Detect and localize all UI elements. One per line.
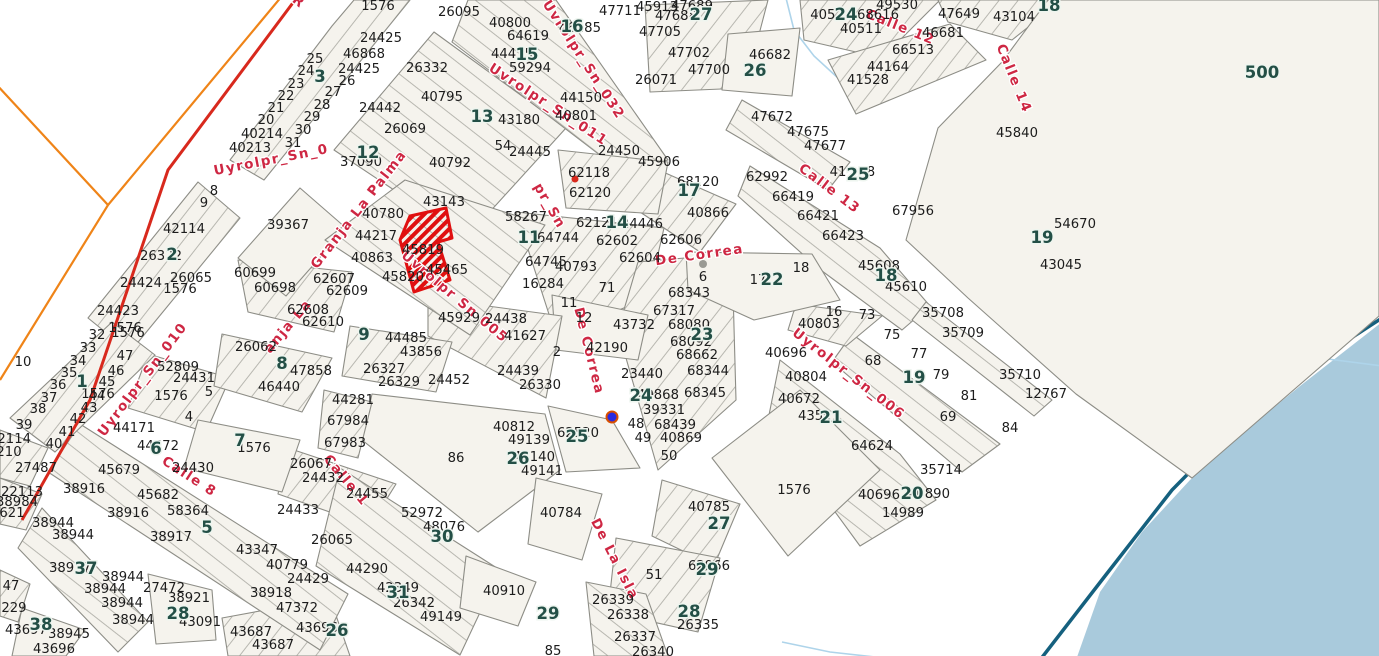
parcel-number-label: 47858 <box>290 364 332 379</box>
parcel-number-label: 68345 <box>684 386 726 401</box>
parcel-number-label: 26332 <box>406 61 448 76</box>
block-number-label: 17 <box>678 181 701 200</box>
parcel-number-label: 85 <box>545 644 562 656</box>
parcel-number-label: 47649 <box>938 7 980 22</box>
parcel-number-label: 46440 <box>258 380 300 395</box>
parcel-number-label: 47372 <box>276 601 318 616</box>
parcel-number-label: 86 <box>448 451 465 466</box>
parcel-number-label: 24438 <box>485 312 527 327</box>
parcel-number-label: 51 <box>646 568 663 583</box>
parcel-number-label: 64624 <box>851 439 893 454</box>
block-number-label: 31 <box>387 583 410 602</box>
parcel-number-label: 54670 <box>1054 217 1096 232</box>
parcel-number-label: 47702 <box>668 46 710 61</box>
parcel-number-label: 38917 <box>150 530 192 545</box>
block-number-label: 28 <box>167 604 190 623</box>
parcel-number-label: 6 <box>699 270 707 285</box>
parcel-number-label: 47672 <box>751 110 793 125</box>
block-number-label: 11 <box>518 228 541 247</box>
parcel-number-label: 67956 <box>892 204 934 219</box>
parcel-number-label: 39367 <box>267 218 309 233</box>
parcel-number-label: 26337 <box>614 630 656 645</box>
parcel-number-label: 44290 <box>346 562 388 577</box>
parcel-number-label: 45679 <box>98 463 140 478</box>
parcel-number-label: 62604 <box>619 251 661 266</box>
parcel-number-label: 11 <box>561 296 578 311</box>
parcel-number-label: 1576 <box>111 326 145 341</box>
parcel-number-label: 40866 <box>687 206 729 221</box>
parcel-number-label: 40696 <box>765 346 807 361</box>
parcel-number-label: 24442 <box>359 101 401 116</box>
parcel-number-label: 44171 <box>113 421 155 436</box>
parcel-number-label: 26095 <box>438 5 480 20</box>
parcel-number-label: 40792 <box>429 156 471 171</box>
parcel-number-label: 38944 <box>84 582 126 597</box>
parcel-number-label: 8 <box>210 184 218 199</box>
parcel-number-label: 40795 <box>421 90 463 105</box>
parcel-number-label: 5 <box>205 385 213 400</box>
parcel-number-label: 41 <box>830 165 847 180</box>
block-number-label: 20 <box>901 484 924 503</box>
map-canvas[interactable]: Uyrolpr_Sn_0Uvrolpr_Sn_011Uvrolpr_Sn_032… <box>0 0 1379 656</box>
parcel-number-label: 26330 <box>519 378 561 393</box>
parcel-number-label: 42114 <box>163 222 205 237</box>
parcel-number-label: 229 <box>1 601 26 616</box>
block-number-label: 3 <box>314 67 325 86</box>
parcel-number-label: 64744 <box>537 231 579 246</box>
parcel-number-label: 26338 <box>607 608 649 623</box>
block-number-label: 19 <box>903 368 926 387</box>
parcel-number-label: 40779 <box>266 558 308 573</box>
parcel-number-label: 43045 <box>1040 258 1082 273</box>
parcel-number-label: 49139 <box>508 433 550 448</box>
block-number-label: 14 <box>606 213 629 232</box>
block-number-label: 23 <box>691 325 714 344</box>
parcel-number-label: 24455 <box>346 487 388 502</box>
parcel-number-label: 46868 <box>343 47 385 62</box>
parcel-number-label: 43687 <box>252 638 294 653</box>
parcel-number-label: 62118 <box>568 166 610 181</box>
parcel-number-label: 23440 <box>621 367 663 382</box>
parcel-number-label: 43856 <box>400 345 442 360</box>
parcel-number-label: 26069 <box>384 122 426 137</box>
parcel-number-label: 40869 <box>660 431 702 446</box>
parcel-number-label: 46 <box>108 364 125 379</box>
parcel-number-label: 4 <box>185 410 193 425</box>
parcel-number-label: 40801 <box>555 109 597 124</box>
parcel-number-label: 1576 <box>154 389 188 404</box>
parcel-number-label: 44281 <box>332 393 374 408</box>
parcel-number-label: 40804 <box>785 370 827 385</box>
parcel-number-label: 62120 <box>569 186 611 201</box>
parcel-number-label: 210 <box>0 445 22 460</box>
parcel-number-label: 66513 <box>892 43 934 58</box>
parcel-number-label: 9 <box>200 196 208 211</box>
parcel-number-label: 14989 <box>882 506 924 521</box>
parcel-number-label: 71 <box>599 281 616 296</box>
street-name-label: R <box>289 0 308 12</box>
map-viewport[interactable]: Uyrolpr_Sn_0Uvrolpr_Sn_011Uvrolpr_Sn_032… <box>0 0 1379 656</box>
parcel-number-label: 64619 <box>507 29 549 44</box>
parcel-number-label: 24425 <box>360 31 402 46</box>
parcel-number-label: 41528 <box>847 73 889 88</box>
block-number-label: 2 <box>166 245 177 264</box>
parcel-number-label: 44217 <box>355 229 397 244</box>
blue-point-marker[interactable] <box>607 412 618 423</box>
block-number-label: 19 <box>1031 228 1054 247</box>
block-number-label: 1 <box>76 372 87 391</box>
parcel-number-label: 43180 <box>498 113 540 128</box>
block-number-label: 38 <box>30 615 53 634</box>
parcel-number-label: 35714 <box>920 463 962 478</box>
parcel-number-label: 47705 <box>639 25 681 40</box>
parcel-number-label: 43732 <box>613 318 655 333</box>
parcel-number-label: 52972 <box>401 506 443 521</box>
parcel-number-label: 24431 <box>173 371 215 386</box>
parcel-number-label: 1576 <box>777 483 811 498</box>
parcel-number-label: 69 <box>940 410 957 425</box>
block-number-label: 29 <box>696 560 719 579</box>
block-number-label: 21 <box>820 408 843 427</box>
parcel-number-label: 66423 <box>822 229 864 244</box>
parcel-number-label: 44150 <box>560 91 602 106</box>
parcel-number-label: 24432 <box>302 471 344 486</box>
block-number-label: 22 <box>761 270 784 289</box>
parcel-number-label: 20 <box>258 113 275 128</box>
block-number-label: 7 <box>234 431 245 450</box>
parcel-number-label: 62602 <box>596 234 638 249</box>
parcel-number-label: 40785 <box>688 500 730 515</box>
parcel-number-label: 48 <box>628 417 645 432</box>
parcel-number-label: 26071 <box>635 73 677 88</box>
parcel-number-label: 39331 <box>643 403 685 418</box>
parcel-number-label: 27487 <box>15 461 57 476</box>
parcel-number-label: 40910 <box>483 584 525 599</box>
parcel-number-label: 24424 <box>120 276 162 291</box>
parcel-number-label: 62606 <box>660 233 702 248</box>
block-number-label: 26 <box>744 61 767 80</box>
parcel-number-label: 24423 <box>97 304 139 319</box>
parcel-number-label: 66419 <box>772 190 814 205</box>
block-number-label: 27 <box>690 5 713 24</box>
parcel-number-label: 2 <box>553 345 561 360</box>
parcel-number-label: 47675 <box>787 125 829 140</box>
parcel-number-label: 84 <box>1002 421 1019 436</box>
parcel-number-label: 68 <box>865 354 882 369</box>
parcel-number-label: 621 <box>0 506 25 521</box>
block-number-label: 24 <box>630 386 653 405</box>
parcel-number-label: 26329 <box>378 375 420 390</box>
parcel-number-label: 35710 <box>999 368 1041 383</box>
parcel-number-label: 45906 <box>638 155 680 170</box>
parcel-number-label: 43143 <box>423 195 465 210</box>
parcel-number-label: 43347 <box>236 543 278 558</box>
orange-boundary-road <box>0 84 108 205</box>
parcel-number-label: 43696 <box>33 642 75 656</box>
block-number-label: 25 <box>847 165 870 184</box>
parcel-number-label: 26340 <box>632 645 674 656</box>
parcel-number-label: 47677 <box>804 139 846 154</box>
parcel-number-label: 38918 <box>250 586 292 601</box>
parcel-number-label: 26065 <box>311 533 353 548</box>
parcel-number-label: 24452 <box>428 373 470 388</box>
parcel-number-label: 45840 <box>996 126 1038 141</box>
parcel-number-label: 24429 <box>287 572 329 587</box>
parcel-number-label: 49149 <box>420 610 462 625</box>
parcel-number-label: 67983 <box>324 436 366 451</box>
parcel-number-label: 39 <box>16 418 33 433</box>
parcel-number-label: 38916 <box>107 506 149 521</box>
parcel-number-label: 66421 <box>797 209 839 224</box>
block-number-label: 27 <box>708 514 731 533</box>
parcel-number-label: 67984 <box>327 414 369 429</box>
parcel-number-label: 40511 <box>840 22 882 37</box>
block-number-label: 28 <box>678 602 701 621</box>
parcel-number-label: 40213 <box>229 141 271 156</box>
parcel-number-label: 40696 <box>858 488 900 503</box>
block-number-label: 500 <box>1245 63 1279 82</box>
parcel-number-label: 49 <box>635 431 652 446</box>
parcel-number-label: 40863 <box>351 251 393 266</box>
block-number-label: 18 <box>1038 0 1061 15</box>
block-number-label: 9 <box>358 325 369 344</box>
parcel-number-label: 38945 <box>48 627 90 642</box>
parcel-number-label: 45465 <box>426 263 468 278</box>
parcel-number-label: 60699 <box>234 266 276 281</box>
parcel-number-label: 45820 <box>382 270 424 285</box>
parcel-number-label: 58364 <box>167 504 209 519</box>
block-number-label: 29 <box>537 604 560 623</box>
parcel-number-label: 41 <box>59 425 76 440</box>
parcel-number-label: 40672 <box>778 392 820 407</box>
parcel-number-label: 50 <box>661 449 678 464</box>
block-number-label: 5 <box>201 518 212 537</box>
parcel-number-label: 43104 <box>993 10 1035 25</box>
block-number-label: 24 <box>835 5 858 24</box>
parcel-number-label: 35708 <box>922 306 964 321</box>
block-number-label: 26 <box>507 449 530 468</box>
parcel-number-label: 46681 <box>922 26 964 41</box>
parcel-number-label: 35709 <box>942 326 984 341</box>
parcel-number-label: 31 <box>285 136 302 151</box>
parcel-number-label: 38944 <box>112 613 154 628</box>
block-number-label: 25 <box>566 427 589 446</box>
block-number-label: 15 <box>516 45 539 64</box>
parcel-number-label: 45929 <box>438 311 480 326</box>
stream-line <box>782 642 884 656</box>
parcel-number-label: 62610 <box>302 315 344 330</box>
parcel-number-label: 40214 <box>241 127 283 142</box>
parcel-number-label: 16284 <box>522 277 564 292</box>
block-number-label: 16 <box>561 17 584 36</box>
parcel-number-label: 45682 <box>137 488 179 503</box>
block-number-label: 37 <box>75 559 98 578</box>
parcel-number-label: 26067 <box>290 457 332 472</box>
parcel-number-label: 38 <box>30 402 47 417</box>
parcel-number-label: 24450 <box>598 144 640 159</box>
parcel-number-label: 77 <box>911 347 928 362</box>
parcel-number-label: 68662 <box>676 348 718 363</box>
parcel-number-label: 40784 <box>540 506 582 521</box>
parcel-number-label: 44485 <box>385 331 427 346</box>
parcel-number-label: 24439 <box>497 364 539 379</box>
parcel-number-label: 40793 <box>555 260 597 275</box>
parcel-number-label: 68616 <box>857 8 899 23</box>
parcel-number-label: 40803 <box>798 317 840 332</box>
block-number-label: 18 <box>875 266 898 285</box>
parcel-number-label: 47 <box>117 349 134 364</box>
block-number-label: 26 <box>326 621 349 640</box>
parcel-number-label: 45819 <box>402 243 444 258</box>
parcel-number-label: 60698 <box>254 281 296 296</box>
parcel-number-label: 12767 <box>1025 387 1067 402</box>
parcel-number-label: 62992 <box>746 170 788 185</box>
parcel-number-label: 62609 <box>326 284 368 299</box>
block-number-label: 13 <box>471 107 494 126</box>
parcel-number-label: 40780 <box>362 207 404 222</box>
parcel-number-label: 24430 <box>172 461 214 476</box>
parcel-number-label: 47 <box>3 579 20 594</box>
parcel-number-label: 81 <box>961 389 978 404</box>
parcel-number-label: 38944 <box>101 596 143 611</box>
parcel-number-label: 12 <box>576 311 593 326</box>
parcel-number-label: 58267 <box>505 210 547 225</box>
parcel-number-label: 26062 <box>235 340 277 355</box>
parcel-number-label: 24445 <box>509 145 551 160</box>
parcel-number-label: 75 <box>884 328 901 343</box>
block-number-label: 6 <box>150 439 161 458</box>
parcel-number-label: 68343 <box>668 286 710 301</box>
parcel-number-label: 47711 <box>599 4 641 19</box>
block-number-label: 12 <box>357 143 380 162</box>
block-number-label: 30 <box>431 527 454 546</box>
parcel-number-label: 38944 <box>52 528 94 543</box>
parcel-number-label: 67317 <box>653 304 695 319</box>
parcel-number-label: 73 <box>859 308 876 323</box>
parcel-number-label: 79 <box>933 368 950 383</box>
parcel-number-label: 1576 <box>361 0 395 14</box>
parcel-number-label: 68344 <box>687 364 729 379</box>
parcel-number-label: 26339 <box>592 593 634 608</box>
parcel-number-label: 24433 <box>277 503 319 518</box>
parcel-number-label: 10 <box>15 355 32 370</box>
block-number-label: 8 <box>276 354 287 373</box>
parcel-number-label: 1576 <box>163 282 197 297</box>
parcel-number-label: 42190 <box>586 341 628 356</box>
parcel-number-label: 47700 <box>688 63 730 78</box>
parcel-number-label: 41627 <box>504 329 546 344</box>
parcel-number-label: 38916 <box>63 482 105 497</box>
parcel-number-label: 18 <box>793 261 810 276</box>
